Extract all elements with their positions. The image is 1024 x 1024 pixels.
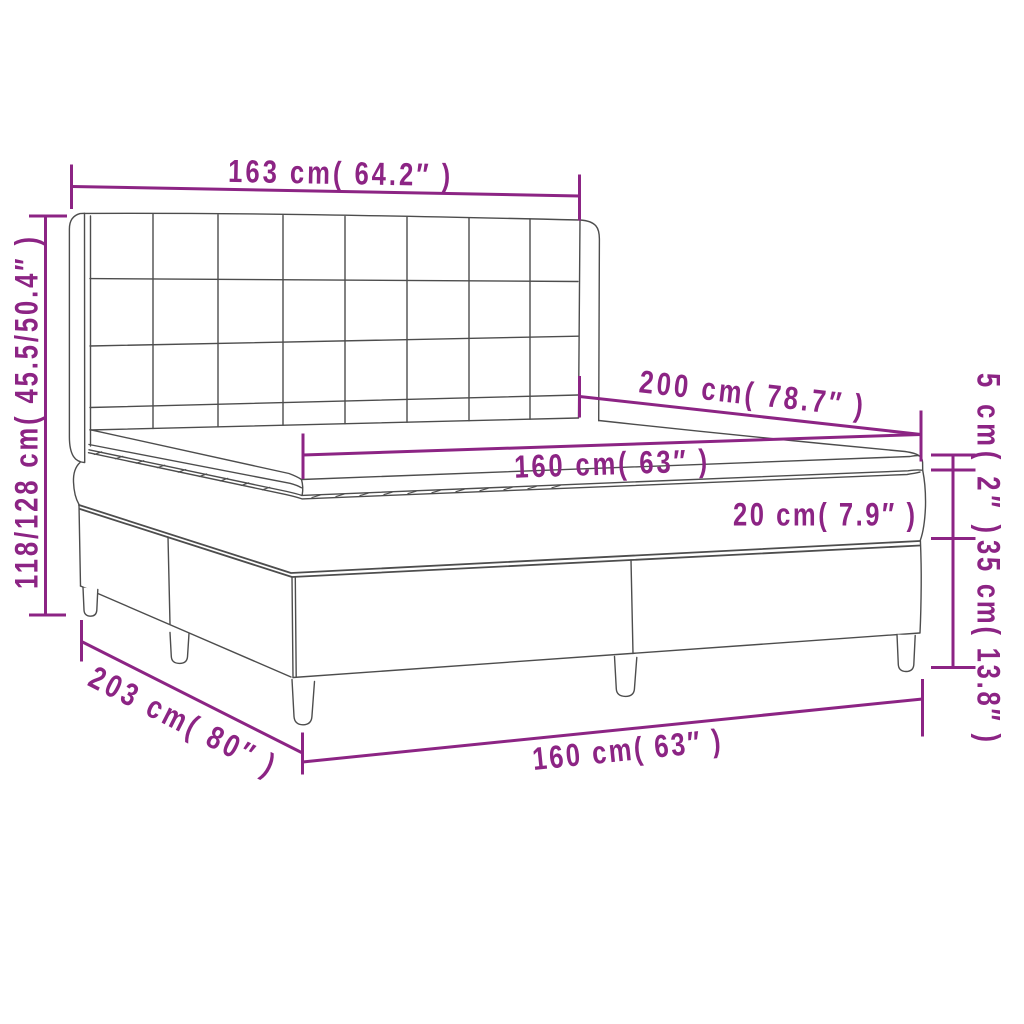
svg-text:160 cm( 63″ ): 160 cm( 63″ ) xyxy=(514,444,708,486)
svg-text:35 cm( 13.8″ ): 35 cm( 13.8″ ) xyxy=(970,540,1005,742)
svg-text:20 cm( 7.9″ ): 20 cm( 7.9″ ) xyxy=(733,498,915,533)
